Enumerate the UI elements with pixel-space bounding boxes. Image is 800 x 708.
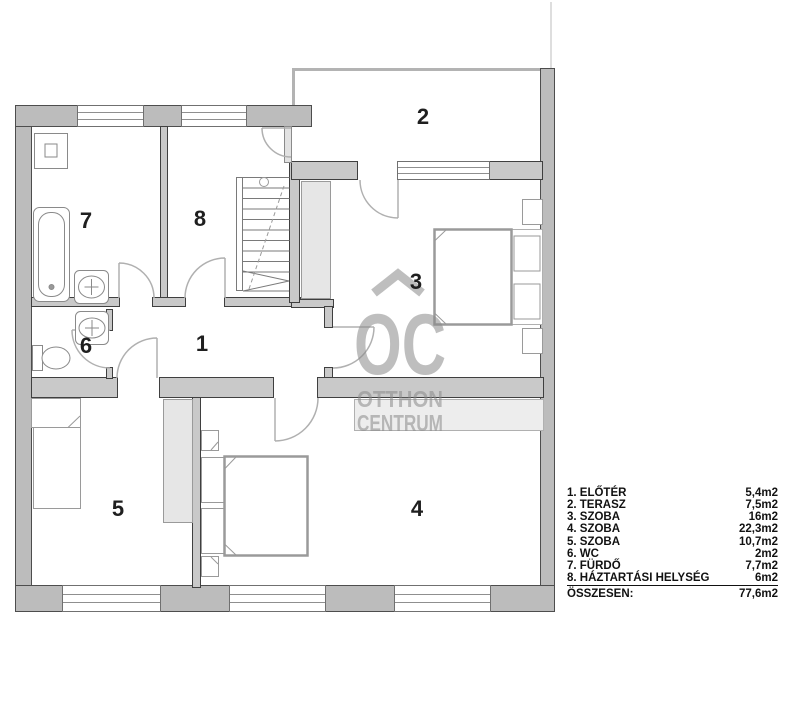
wall-bottom-pier [161, 586, 230, 612]
terrace-parapet [294, 70, 547, 106]
door-arc-room8 [185, 258, 225, 298]
stair-v [243, 271, 289, 291]
wall-room7-room8 [161, 127, 168, 299]
wall-room5-room4 [193, 398, 201, 588]
legend-row: 1. ELŐTÉR 5,4m2 [567, 487, 778, 499]
room-label-7: 7 [80, 208, 92, 233]
wall-room3-hall [325, 307, 333, 328]
legend-row: 7. FÜRDŐ 7,7m2 [567, 560, 778, 572]
bed [202, 431, 308, 577]
legend-label: 3. SZOBA [567, 511, 620, 523]
door-arc-room4 [275, 398, 318, 441]
door-arc-room5 [117, 338, 157, 378]
window [182, 106, 247, 127]
legend-row: 2. TERASZ 7,5m2 [567, 499, 778, 511]
stair-walkline-start [260, 178, 269, 187]
door-arc-room7 [119, 263, 154, 298]
sink [75, 271, 109, 304]
watermark-monogram: OC [354, 297, 446, 393]
stair-walkline [249, 186, 284, 289]
legend-label: 2. TERASZ [567, 499, 626, 511]
window [395, 586, 491, 612]
wall-wc [107, 368, 113, 379]
legend-value: 2m2 [755, 548, 778, 560]
room-label-3: 3 [410, 269, 422, 294]
room-label-1: 1 [196, 331, 208, 356]
room-label-5: 5 [112, 496, 124, 521]
washing-machine [35, 134, 68, 169]
watermark: OC OTTHON CENTRUM [354, 274, 446, 436]
room-label-2: 2 [417, 104, 429, 129]
wall-terrace-room3 [292, 162, 358, 180]
room-label-4: 4 [411, 496, 424, 521]
wall-mid [160, 378, 274, 398]
bed [32, 399, 81, 509]
window [78, 106, 144, 127]
legend-row: 8. HÁZTARTÁSI HELYSÉG 6m2 [567, 572, 778, 586]
legend-label: 8. HÁZTARTÁSI HELYSÉG [567, 572, 710, 584]
room-label-8: 8 [194, 206, 206, 231]
floor-plan-canvas: OC OTTHON CENTRUM 1 2 3 4 5 6 7 8 1. ELŐ… [0, 0, 800, 708]
wall-bottom-pier [16, 586, 63, 612]
wall-hall-top [153, 298, 186, 307]
legend-label: 6. WC [567, 548, 599, 560]
legend-value: 7,5m2 [745, 499, 778, 511]
fixtures [32, 134, 544, 577]
wall-stairwell [290, 162, 300, 303]
wall-top-pier [247, 106, 312, 127]
wall-bottom-pier [326, 586, 395, 612]
wall-left [16, 106, 32, 612]
wall-terrace-room3 [490, 162, 543, 180]
wall-top-pier [16, 106, 78, 127]
room-label-6: 6 [80, 333, 92, 358]
wall-room3-hall [325, 368, 333, 379]
wall-top-pier [144, 106, 182, 127]
watermark-line2: CENTRUM [357, 410, 443, 436]
legend-label: 5. SZOBA [567, 536, 620, 548]
legend-row: 6. WC 2m2 [567, 548, 778, 560]
bathtub [34, 208, 70, 302]
wall-mid [32, 378, 118, 398]
watermark-line1: OTTHON [357, 386, 443, 412]
legend-row: 3. SZOBA 16m2 [567, 511, 778, 523]
legend-value: 10,7m2 [739, 536, 778, 548]
legend-row: 5. SZOBA 10,7m2 [567, 536, 778, 548]
legend-label: 1. ELŐTÉR [567, 487, 626, 499]
legend-value: 6m2 [755, 572, 778, 584]
legend-value: 7,7m2 [745, 560, 778, 572]
wall-bottom-pier [491, 586, 555, 612]
stair-stringer [237, 178, 243, 291]
stair-treads [243, 178, 290, 273]
legend-value: 22,3m2 [739, 523, 778, 535]
legend-total-label: ÖSSZESEN: [567, 588, 633, 600]
floor-plan: OC OTTHON CENTRUM 1 2 3 4 5 6 7 8 [0, 0, 800, 708]
door-arc-terrace-room3 [360, 180, 398, 218]
window [63, 586, 161, 612]
wardrobe [302, 182, 331, 299]
legend-total-row: ÖSSZESEN: 77,6m2 [567, 586, 778, 600]
staircase [237, 178, 290, 292]
area-legend: 1. ELŐTÉR 5,4m2 2. TERASZ 7,5m2 3. SZOBA… [567, 487, 778, 600]
bed [435, 200, 543, 354]
toilet [33, 346, 71, 371]
legend-label: 7. FÜRDŐ [567, 560, 621, 572]
legend-value: 5,4m2 [745, 487, 778, 499]
legend-label: 4. SZOBA [567, 523, 620, 535]
wardrobe [164, 400, 193, 523]
legend-total-value: 77,6m2 [739, 588, 778, 600]
window [230, 586, 326, 612]
window [398, 162, 490, 180]
legend-row: 4. SZOBA 22,3m2 [567, 523, 778, 535]
legend-value: 16m2 [749, 511, 778, 523]
